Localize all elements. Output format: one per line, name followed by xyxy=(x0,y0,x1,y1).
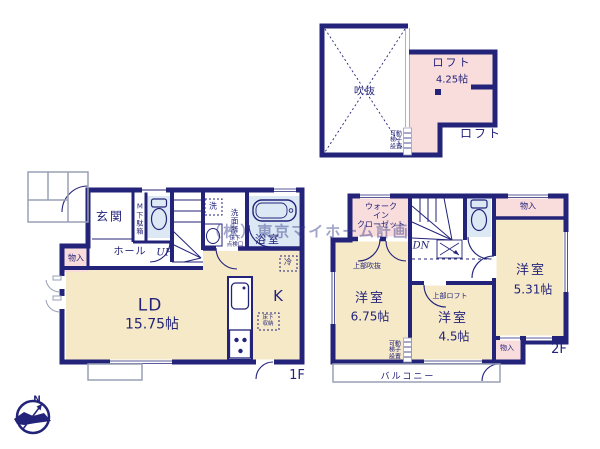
storage-bottom-label: 物入 xyxy=(500,345,514,353)
void-label: 吹抜 xyxy=(354,87,376,98)
f2-ladder-icon xyxy=(404,338,412,362)
living-label: LD xyxy=(138,297,163,316)
fridge-label: 冷 xyxy=(284,259,292,268)
living-size-label: 15.75帖 xyxy=(125,317,179,332)
storage-label-1f: 物入 xyxy=(68,255,84,264)
loft-ladder-icon xyxy=(404,128,412,155)
floor-hatch-line2: 点検口 xyxy=(227,243,244,249)
floor-storage-label: 床下 収納 xyxy=(262,316,273,328)
loft-ladder-note: 可動 梯子 設置 xyxy=(390,132,402,151)
loft-post xyxy=(435,89,441,95)
f2-ladder-note-line3: 設置 xyxy=(389,354,401,360)
wic-line2: イン xyxy=(357,211,405,220)
storage-top-label: 物入 xyxy=(520,203,536,212)
loft-size-label: 4.25帖 xyxy=(436,75,468,86)
loft-room-label: ロフト xyxy=(433,57,472,69)
floor-label-2f: 2F xyxy=(551,343,567,357)
casement-window-icons xyxy=(46,276,61,312)
loft-floor-label: ロフト xyxy=(460,127,502,140)
floor-storage-line2: 収納 xyxy=(262,322,273,328)
hall-label: ホール xyxy=(114,247,147,258)
shoe-box-label: M下駄箱 xyxy=(135,203,143,236)
watermark: （株）東京マイホーム計画 xyxy=(206,221,410,242)
room-right-size: 5.31帖 xyxy=(514,283,553,296)
entrance-label: 玄関 xyxy=(96,210,124,223)
toilet-room-1f xyxy=(147,196,172,238)
f1-section xyxy=(28,172,302,380)
room-right-label: 洋室 xyxy=(516,264,546,278)
stairs-dn-label: DN xyxy=(413,241,430,252)
room-mid-note: 上部ロフト xyxy=(433,293,468,301)
balcony-label: バルコニー xyxy=(381,373,436,383)
floor-plan-page: 吹抜 ロフト 4.25帖 可動 梯子 設置 ロフト 玄関 M下駄箱 ホール 物入… xyxy=(0,0,600,449)
room-left-note: 上部吹抜 xyxy=(353,263,381,271)
loft-ladder-note-line3: 設置 xyxy=(390,144,402,150)
room-left-size: 6.75帖 xyxy=(351,310,390,323)
kitchen-counter xyxy=(228,277,252,360)
stairs-up-label: UP xyxy=(156,248,171,259)
washer-label: 洗 xyxy=(209,203,217,212)
room-mid-label: 洋室 xyxy=(438,312,468,326)
room-mid-size: 4.5帖 xyxy=(438,330,469,343)
compass-north-label: N xyxy=(33,396,41,406)
f2-ladder-note: 可動 梯子 設置 xyxy=(389,342,401,361)
kitchen-label: K xyxy=(273,288,283,305)
room-left-label: 洋室 xyxy=(355,292,385,306)
floor-label-1f: 1F xyxy=(289,369,305,383)
stairs-1f xyxy=(172,200,203,262)
wic-line1: ウォーク xyxy=(357,202,405,211)
